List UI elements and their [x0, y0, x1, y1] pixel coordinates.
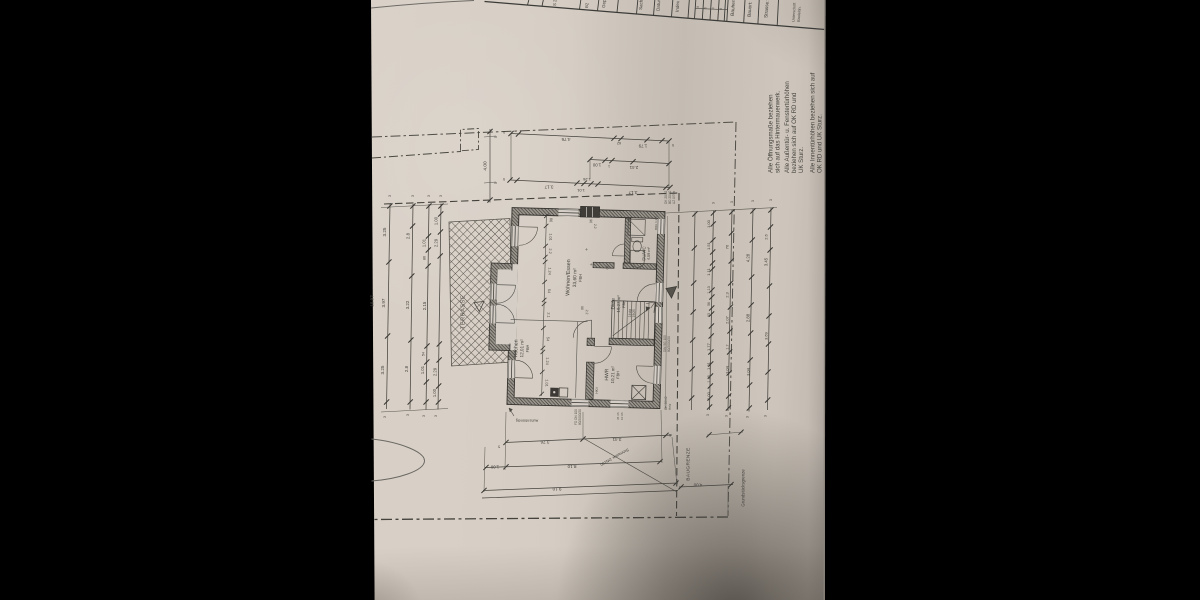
svg-text:BAUGRENZE: BAUGRENZE: [686, 447, 692, 480]
svg-text:d: d: [719, 8, 723, 10]
svg-text:3.04: 3.04: [746, 367, 751, 376]
svg-text:76: 76: [725, 244, 730, 249]
svg-text:12,01 m²: 12,01 m²: [519, 339, 524, 358]
svg-text:3.04: 3.04: [725, 365, 730, 374]
svg-text:Index: Index: [675, 0, 681, 12]
svg-text:1.01: 1.01: [420, 365, 425, 374]
svg-text:1.7: 1.7: [726, 344, 730, 349]
svg-text:90: 90: [580, 306, 584, 310]
svg-text:86: 86: [423, 256, 427, 260]
svg-text:Wohnen/Essen: Wohnen/Essen: [565, 259, 572, 296]
svg-text:Außenbündig: Außenbündig: [516, 419, 539, 423]
svg-text:54: 54: [546, 337, 550, 341]
svg-text:10 96: 10 96: [620, 412, 624, 420]
svg-text:2.1: 2.1: [546, 312, 550, 317]
svg-text:Strasse: E: Strasse: E: [763, 0, 771, 18]
svg-text:2.2: 2.2: [585, 310, 589, 315]
svg-text:1.00: 1.00: [592, 163, 601, 168]
svg-text:Alle Öffnungsmaße beziehen: Alle Öffnungsmaße beziehen: [768, 95, 775, 173]
svg-text:+: +: [585, 247, 588, 253]
svg-text:3.45: 3.45: [764, 257, 769, 266]
svg-text:1.26: 1.26: [582, 177, 591, 182]
svg-text:1: 1: [608, 164, 610, 168]
svg-text:1.01: 1.01: [706, 361, 711, 370]
svg-text:1.00: 1.00: [706, 391, 711, 400]
svg-text:19/25: 19/25: [632, 309, 636, 318]
svg-text:2.6: 2.6: [764, 233, 769, 239]
svg-text:a: a: [696, 6, 700, 8]
svg-text:1.00: 1.00: [490, 465, 499, 470]
svg-text:1.01: 1.01: [544, 379, 548, 386]
svg-text:2.88: 2.88: [746, 313, 751, 322]
svg-text:2.3: 2.3: [725, 291, 730, 297]
svg-text:2.15: 2.15: [422, 301, 427, 310]
svg-text:5: 5: [672, 143, 674, 147]
svg-text:3: 3: [434, 415, 438, 417]
svg-text:DU/WC: DU/WC: [641, 246, 646, 260]
svg-text:54: 54: [547, 289, 551, 293]
svg-text:TERRASSE: TERRASSE: [461, 295, 467, 329]
svg-text:4,59 m²: 4,59 m²: [647, 246, 651, 260]
svg-text:3: 3: [422, 415, 426, 417]
svg-text:62: 62: [617, 141, 621, 145]
svg-text:63: 63: [707, 313, 711, 317]
svg-text:3: 3: [406, 414, 410, 416]
svg-text:4.00: 4.00: [693, 483, 702, 488]
svg-text:3.22: 3.22: [405, 300, 410, 309]
svg-text:2.2: 2.2: [593, 224, 597, 229]
svg-text:2.07: 2.07: [725, 315, 730, 324]
svg-text:3: 3: [751, 200, 755, 202]
svg-text:1.00: 1.00: [432, 388, 437, 397]
svg-text:c: c: [711, 7, 715, 9]
svg-text:FBH: FBH: [526, 344, 530, 352]
svg-text:FBH: FBH: [622, 300, 626, 308]
svg-text:1.79: 1.79: [638, 144, 647, 149]
svg-text:9.10: 9.10: [552, 487, 561, 492]
svg-text:1.51: 1.51: [706, 241, 711, 250]
svg-text:Bauort:: Bauort:: [747, 1, 754, 17]
svg-text:1.26: 1.26: [707, 375, 711, 382]
svg-text:3.17: 3.17: [628, 190, 637, 195]
svg-text:Alle Innentürhöhen beziehen si: Alle Innentürhöhen beziehen sich auf: [810, 72, 817, 173]
svg-text:3: 3: [388, 195, 392, 197]
svg-text:4.00: 4.00: [483, 161, 489, 171]
svg-text:Gep.: Gep.: [601, 0, 607, 8]
svg-text:3: 3: [769, 199, 773, 201]
svg-text:UK Sturz.: UK Sturz.: [798, 147, 805, 173]
svg-text:3.76: 3.76: [540, 440, 549, 445]
svg-text:1.01: 1.01: [576, 188, 585, 193]
svg-text:3.17: 3.17: [544, 185, 553, 190]
svg-text:Schmutzw. DN100: Schmutzw. DN100: [599, 447, 630, 467]
svg-text:3: 3: [730, 201, 734, 203]
svg-text:1.01: 1.01: [422, 238, 427, 247]
svg-text:2.29: 2.29: [433, 367, 438, 376]
svg-text:4.28: 4.28: [746, 253, 751, 262]
svg-text:3.25: 3.25: [380, 365, 385, 374]
svg-text:Datum: Datum: [656, 0, 662, 11]
svg-text:3: 3: [746, 416, 750, 418]
svg-text:+: +: [590, 262, 593, 268]
svg-text:5: 5: [498, 445, 500, 449]
svg-text:FBH: FBH: [616, 371, 620, 379]
svg-text:10,27 m²: 10,27 m²: [616, 295, 621, 313]
svg-text:2.8: 2.8: [406, 232, 411, 239]
svg-text:10,21 m²: 10,21 m²: [610, 365, 615, 383]
svg-text:Sach: Sach: [638, 0, 644, 10]
svg-text:80/2000/20: 80/2000/20: [667, 336, 671, 352]
svg-text:FBH: FBH: [578, 274, 583, 282]
svg-text:sich auf das Hintermauerwerk.: sich auf das Hintermauerwerk.: [775, 90, 782, 173]
svg-text:1.24: 1.24: [545, 357, 549, 364]
svg-text:86: 86: [549, 218, 553, 222]
svg-text:5: 5: [669, 433, 671, 437]
svg-text:2.2: 2.2: [548, 248, 552, 253]
svg-text:8.10: 8.10: [567, 464, 576, 469]
svg-text:1.01: 1.01: [548, 233, 552, 240]
svg-text:4.76: 4.76: [561, 137, 570, 142]
svg-text:Bauleitin.: Bauleitin.: [797, 6, 802, 22]
svg-text:b: b: [703, 7, 707, 9]
svg-text:HKV: HKV: [595, 386, 599, 394]
svg-text:5: 5: [503, 130, 505, 134]
svg-text:3: 3: [383, 416, 387, 418]
svg-text:1.77: 1.77: [706, 342, 711, 351]
svg-text:UZ 0/70: UZ 0/70: [672, 192, 676, 204]
svg-text:1.13: 1.13: [707, 286, 711, 293]
svg-text:3: 3: [439, 195, 443, 197]
svg-text:90: 90: [589, 219, 593, 223]
svg-text:3.25: 3.25: [382, 227, 387, 236]
svg-text:OK RD und UK Sturz.: OK RD und UK Sturz.: [817, 114, 824, 173]
svg-text:beziehen sich auf OK RD und: beziehen sich auf OK RD und: [791, 93, 798, 173]
svg-text:1.11: 1.11: [706, 267, 711, 275]
svg-text:3: 3: [764, 415, 768, 417]
svg-text:54: 54: [422, 352, 426, 356]
svg-text:3: 3: [411, 195, 415, 197]
svg-text:5: 5: [503, 177, 505, 181]
svg-text:BRH 1,3m: BRH 1,3m: [654, 216, 658, 230]
svg-text:3: 3: [712, 202, 716, 204]
svg-text:80/2000/20: 80/2000/20: [578, 409, 582, 425]
svg-text:B2: B2: [584, 2, 589, 8]
svg-text:3.69: 3.69: [764, 331, 769, 340]
svg-text:2.8: 2.8: [404, 365, 409, 372]
svg-text:1.00: 1.00: [434, 216, 439, 225]
svg-text:10.97: 10.97: [370, 295, 375, 307]
svg-text:Alle Außentür- u. Fenstertürhö: Alle Außentür- u. Fenstertürhöhen: [784, 81, 791, 173]
svg-text:3: 3: [427, 195, 431, 197]
svg-text:3: 3: [725, 415, 729, 417]
svg-text:56: 56: [707, 302, 711, 306]
svg-text:Grundstücksgrenze: Grundstücksgrenze: [741, 469, 746, 507]
svg-text:3: 3: [706, 414, 710, 416]
svg-text:1.00: 1.00: [706, 219, 711, 228]
svg-text:S 20: S 20: [552, 0, 558, 6]
svg-text:Heiz: Heiz: [668, 403, 672, 410]
svg-text:2.29: 2.29: [434, 238, 439, 247]
svg-text:Bauherr:: Bauherr:: [730, 0, 737, 16]
svg-text:3.97: 3.97: [381, 298, 386, 307]
svg-text:1.24: 1.24: [547, 267, 551, 274]
svg-text:2.41: 2.41: [629, 165, 638, 170]
svg-text:80: 80: [605, 266, 609, 270]
svg-text:3.41: 3.41: [612, 437, 621, 442]
